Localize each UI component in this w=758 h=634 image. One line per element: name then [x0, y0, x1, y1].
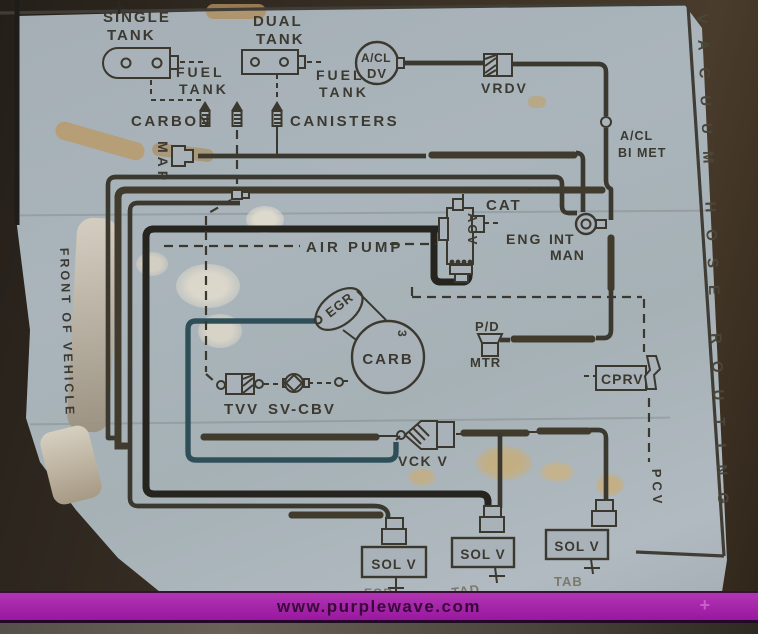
- hose-junction-connector: [601, 117, 611, 127]
- sol-v-label-2: SOL V: [460, 547, 505, 562]
- purplewave-watermark-banner: www.purplewave.com +: [0, 591, 758, 623]
- acl-bimet-label-1: A/CL: [620, 129, 653, 143]
- acl-dv-label-1: A/CL: [361, 51, 391, 65]
- map-connector: [172, 146, 193, 166]
- edge-title-left: FRONT OF VEHICLE: [57, 248, 77, 418]
- vck-v-label: VCK V: [398, 453, 448, 469]
- vrdv-label: VRDV: [481, 80, 528, 96]
- pd-motor: [478, 334, 502, 356]
- acv-label: ACV: [465, 213, 480, 246]
- carb-label: CARB: [362, 351, 413, 368]
- single-fuel-tank: [103, 48, 178, 78]
- fuel-tank-label-2b: TANK: [319, 84, 369, 100]
- acl-dv-label-2: DV: [367, 66, 387, 81]
- tvv-label: TVV: [224, 401, 259, 418]
- dual-tank-label: DUAL: [253, 13, 303, 30]
- cat-label: CAT: [486, 197, 522, 214]
- sv-cbv-label: SV-CBV: [268, 401, 336, 418]
- cprv-label: CPRV: [601, 371, 644, 387]
- canisters-label: CANISTERS: [290, 113, 399, 130]
- photo-bottom-edge: [0, 623, 758, 634]
- edge-title-right: VACUUM HOSE ROUTING: [693, 13, 732, 521]
- vck-check-valve: [397, 421, 454, 449]
- sol-valve-tad: [452, 506, 514, 583]
- pcv-check-valve: [645, 356, 660, 389]
- dual-fuel-tank: [242, 50, 305, 74]
- intake-manifold-tree: [576, 214, 606, 234]
- plus-watermark-banner: +: [699, 595, 710, 616]
- single-tank-label2: TANK: [107, 27, 156, 44]
- fuel-tank-label-1a: FUEL: [176, 64, 225, 80]
- tvv-valve: [217, 374, 263, 394]
- tab-label: TAB: [554, 574, 583, 589]
- pcv-label: PCV: [649, 469, 665, 508]
- sol-v-label-3: SOL V: [554, 539, 599, 554]
- vrdv-valve: [484, 54, 512, 76]
- eng-label: ENG: [506, 231, 542, 247]
- watermark-url-text: www.purplewave.com: [277, 597, 481, 617]
- carb-port-number: 3: [395, 330, 409, 337]
- mid-fitting: [232, 190, 249, 199]
- map-label: MAP: [155, 141, 171, 184]
- sol-v-label-1: SOL V: [371, 557, 416, 572]
- single-tank-label: SINGLE: [103, 9, 171, 26]
- dual-tank-label2: TANK: [256, 31, 305, 48]
- pd-label: P/D: [475, 319, 500, 334]
- acl-bimet-label-2: BI MET: [618, 146, 666, 160]
- air-pump-label: AIR PUMP: [306, 239, 403, 256]
- carbon-label: CARBON: [131, 113, 212, 130]
- fuel-tank-label-1b: TANK: [179, 81, 229, 97]
- fuel-tank-label-2a: FUEL: [316, 67, 365, 83]
- photo-of-vacuum-diagram: VACUUM HOSE ROUTING FRONT OF VEHICLE: [0, 0, 758, 634]
- man-label: MAN: [550, 247, 585, 263]
- int-label: INT: [549, 231, 575, 247]
- mtr-label: MTR: [470, 355, 501, 370]
- vacuum-hose-routing-diagram: VACUUM HOSE ROUTING FRONT OF VEHICLE: [0, 0, 758, 634]
- sol-valve-tab: [546, 500, 616, 574]
- sol-valve-egr: [362, 518, 426, 594]
